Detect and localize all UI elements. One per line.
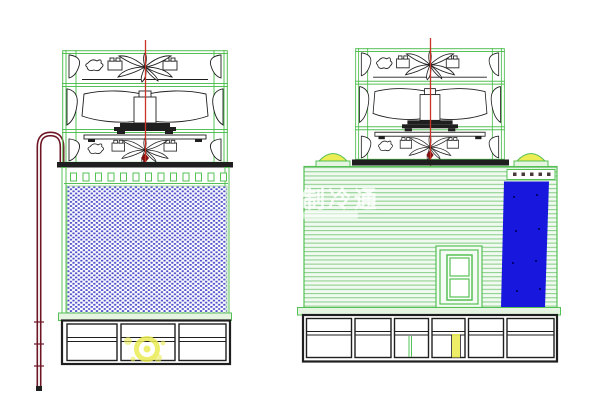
- left-tower-view: [34, 40, 233, 391]
- fill-media: [67, 186, 227, 313]
- access-door: [436, 246, 482, 308]
- drain-detail: [452, 334, 461, 358]
- cooling-tower-drawing: 制冷通: [0, 0, 600, 400]
- right-tower-view: 制冷通: [298, 38, 561, 362]
- left-casing-wall: [62, 168, 66, 314]
- downcomer-column: [501, 182, 549, 308]
- right-fan-deck: [352, 160, 509, 166]
- pipe-anchor: [36, 386, 42, 391]
- spray-nozzle-row: [64, 173, 228, 184]
- left-inlet-dome: [316, 154, 350, 167]
- left-fan-deck: [57, 162, 233, 168]
- right-basin-rim: [298, 308, 561, 316]
- right-water-basin: [303, 315, 557, 362]
- right-inlet-dome: [514, 154, 548, 167]
- left-basin-rim: [59, 313, 232, 321]
- bolt-strip: [507, 170, 555, 180]
- left-water-basin: [62, 321, 230, 365]
- watermark-title: 制冷通: [302, 186, 380, 213]
- watermark-subtext-blur: [303, 212, 358, 219]
- riser-pipe: [34, 134, 62, 391]
- cad-drawing-canvas: 制冷通: [0, 0, 600, 400]
- door-window: [447, 255, 472, 300]
